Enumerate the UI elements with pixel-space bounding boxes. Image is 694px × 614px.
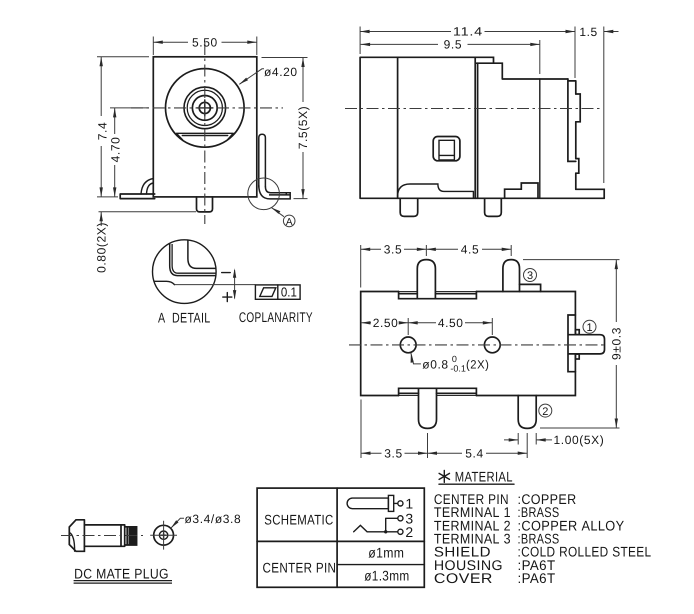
svg-text:-0.1: -0.1	[450, 363, 466, 373]
svg-text:ø4.20: ø4.20	[264, 65, 298, 79]
svg-text:4.70: 4.70	[109, 137, 123, 163]
svg-text:4.5: 4.5	[461, 243, 479, 257]
svg-text:0.1: 0.1	[281, 285, 297, 300]
svg-text:9.5: 9.5	[444, 38, 462, 52]
svg-text:ø0.8: ø0.8	[422, 358, 448, 372]
svg-text:1: 1	[405, 496, 413, 512]
svg-text:A: A	[286, 217, 293, 228]
svg-text:ø1mm: ø1mm	[368, 545, 404, 561]
svg-text:9±0.3: 9±0.3	[609, 327, 623, 360]
svg-text:11.4: 11.4	[453, 25, 483, 39]
svg-text:SCHEMATIC: SCHEMATIC	[264, 512, 333, 528]
svg-text:2: 2	[542, 406, 548, 418]
svg-text:CENTER PIN: CENTER PIN	[263, 559, 337, 575]
svg-text:DC MATE PLUG: DC MATE PLUG	[74, 565, 169, 581]
svg-text:7.5(5X): 7.5(5X)	[296, 106, 310, 150]
svg-text:MATERIAL: MATERIAL	[455, 468, 513, 484]
svg-text:ø1.3mm: ø1.3mm	[364, 567, 409, 583]
svg-text:A DETAIL: A DETAIL	[158, 309, 211, 325]
svg-text:2.50: 2.50	[373, 316, 399, 330]
svg-text:ø3.4/ø3.8: ø3.4/ø3.8	[185, 512, 242, 526]
svg-text:(2X): (2X)	[466, 358, 490, 372]
svg-text:4.50: 4.50	[438, 316, 464, 330]
svg-text:5.4: 5.4	[465, 446, 483, 460]
svg-text:7.4: 7.4	[95, 122, 109, 140]
svg-text:1: 1	[586, 322, 592, 334]
svg-text:1.00(5X): 1.00(5X)	[554, 433, 605, 447]
svg-text::PA6T: :PA6T	[518, 570, 556, 586]
svg-text:COPLANARITY: COPLANARITY	[239, 309, 313, 325]
svg-text:1.5: 1.5	[579, 25, 597, 39]
svg-text:3: 3	[527, 270, 533, 282]
svg-text:0: 0	[452, 354, 457, 364]
svg-text:2: 2	[405, 524, 413, 540]
svg-text:0.80(2X): 0.80(2X)	[94, 222, 108, 273]
svg-text:COVER: COVER	[434, 570, 493, 586]
svg-text:3.5: 3.5	[384, 243, 402, 257]
svg-text:5.50: 5.50	[192, 35, 218, 49]
svg-text:3.5: 3.5	[384, 446, 402, 460]
